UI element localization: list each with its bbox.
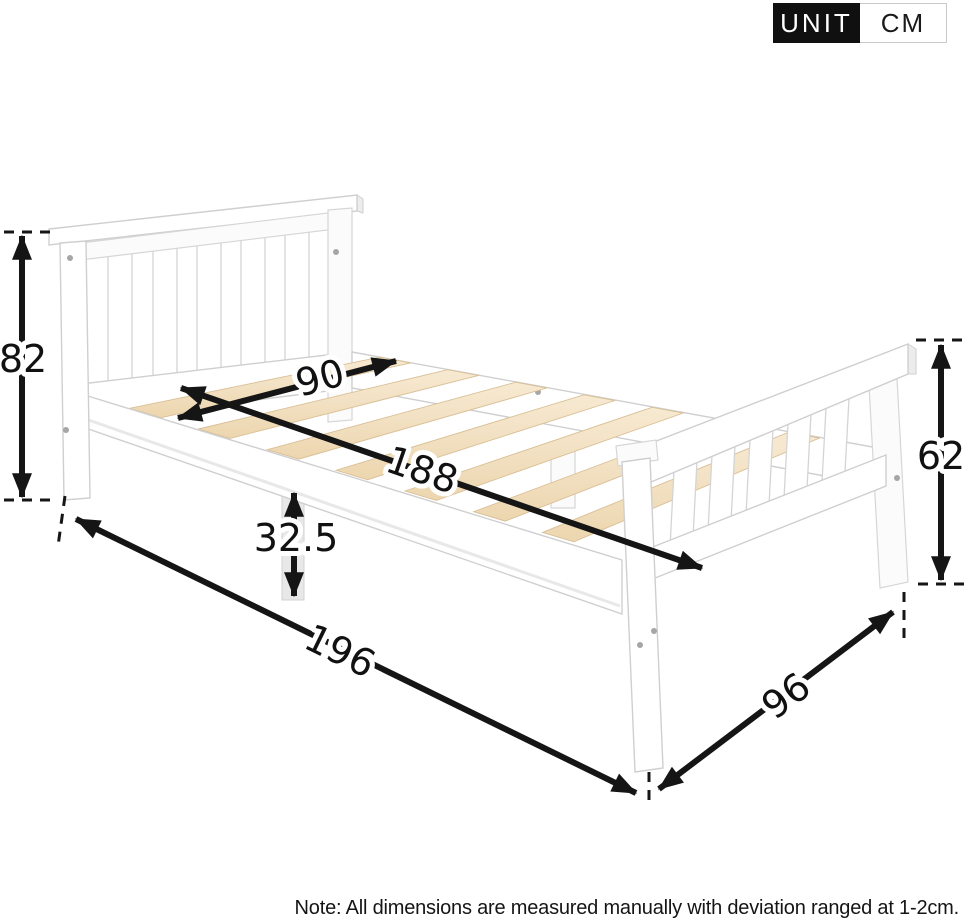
headboard-slat [108,247,132,388]
headboard-slat [153,242,177,383]
headboard-slat [197,237,221,378]
headboard-cap-end [357,195,363,213]
screw [333,249,339,255]
screw [637,642,643,648]
headboard-front-post [60,241,90,500]
screw [63,427,69,433]
dim-label-overall-length: 196 [298,615,382,686]
bed-frame-illustration: 82 90 188 32.5 196 96 62 [0,0,967,924]
headboard-slat [285,226,309,367]
product-dimension-diagram: UNIT CM [0,0,967,924]
dim-label-footboard-height: 62 [917,434,965,478]
screw [651,628,657,634]
dim-label-headboard-height: 82 [0,337,47,381]
measurement-note: Note: All dimensions are measured manual… [0,897,959,920]
dim-label-frame-height: 32.5 [254,516,339,560]
footboard-slat [822,399,849,483]
footboard-cap-end [908,344,916,374]
screw [894,475,900,481]
extension-line [58,496,65,546]
screw [67,255,73,261]
headboard-slat [241,232,265,373]
